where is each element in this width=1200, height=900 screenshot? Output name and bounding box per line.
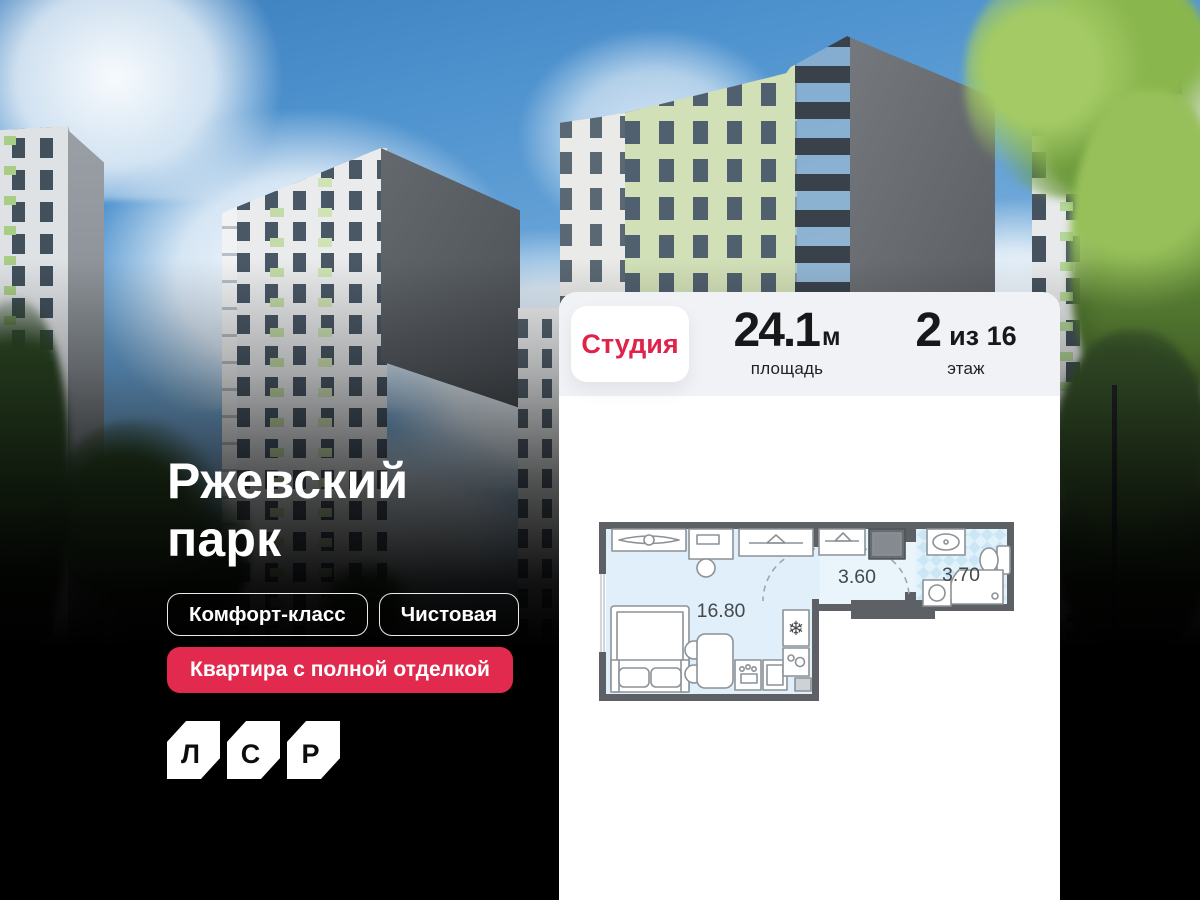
hallway-area-label: 3.60 xyxy=(838,566,876,588)
card-header: Студия 24.1м площадь 2из 16 этаж xyxy=(559,292,1060,396)
tag-finishing: Чистовая xyxy=(379,593,519,636)
fridge-snowflake-icon: ❄ xyxy=(788,618,804,640)
floor-plan: ❄ 16.80 3.60 3.70 xyxy=(599,522,1020,705)
oven-door xyxy=(767,665,783,685)
project-title-line2: парк xyxy=(167,510,408,568)
logo-cube: Л xyxy=(167,721,220,779)
hero-content: Ржевский парк Комфорт-класс Чистовая Ква… xyxy=(0,0,560,900)
logo-letter: Л xyxy=(181,739,200,770)
floor-value-row: 2из 16 xyxy=(883,307,1049,355)
counter-corner xyxy=(795,678,811,691)
armrest xyxy=(611,660,619,692)
floor-caption: этаж xyxy=(883,359,1049,379)
sink-drain xyxy=(944,540,948,544)
lsr-logo: Л С Р xyxy=(167,721,340,779)
promo-banner: Ржевский парк Комфорт-класс Чистовая Ква… xyxy=(0,0,1200,900)
chair xyxy=(697,559,715,577)
floor-stat: 2из 16 этаж xyxy=(883,307,1049,379)
logo-cube: С xyxy=(227,721,280,779)
shower-drain xyxy=(992,593,998,599)
apartment-card[interactable]: Студия 24.1м площадь 2из 16 этаж xyxy=(559,292,1060,900)
tv-lens xyxy=(644,535,654,545)
area-value: 24.1 xyxy=(734,307,819,355)
burner xyxy=(796,658,805,667)
window-mark xyxy=(599,574,606,652)
burner xyxy=(788,655,794,661)
area-caption: площадь xyxy=(701,359,873,379)
area-value-row: 24.1м xyxy=(701,307,873,355)
area-unit: м xyxy=(822,323,841,352)
cushion xyxy=(619,668,649,687)
mattress xyxy=(617,612,683,660)
project-title: Ржевский парк xyxy=(167,452,408,568)
logo-letter: С xyxy=(241,739,261,770)
highlight-badge: Квартира с полной отделкой xyxy=(167,647,513,693)
door-opening xyxy=(905,542,916,592)
area-stat: 24.1м площадь xyxy=(701,307,873,379)
apartment-type-chip: Студия xyxy=(571,306,689,382)
logo-cube: Р xyxy=(287,721,340,779)
toilet-bowl xyxy=(980,548,998,572)
desk-item xyxy=(697,535,719,544)
pot-dot xyxy=(752,667,756,671)
washer-drum xyxy=(929,585,945,601)
closet-door xyxy=(873,533,901,555)
logo-letter: Р xyxy=(301,739,319,770)
pot-dot xyxy=(740,667,744,671)
table xyxy=(697,634,733,688)
floor-value: 2 xyxy=(915,307,940,355)
bathroom-area-label: 3.70 xyxy=(942,564,980,586)
pot-dot xyxy=(746,665,750,669)
room-area-label: 16.80 xyxy=(697,600,746,622)
pot xyxy=(741,674,757,683)
tag-comfort-class: Комфорт-класс xyxy=(167,593,368,636)
project-title-line1: Ржевский xyxy=(167,452,408,510)
cushion xyxy=(651,668,681,687)
floor-of-total: из 16 xyxy=(949,321,1017,352)
tag-row: Комфорт-класс Чистовая xyxy=(167,593,519,636)
